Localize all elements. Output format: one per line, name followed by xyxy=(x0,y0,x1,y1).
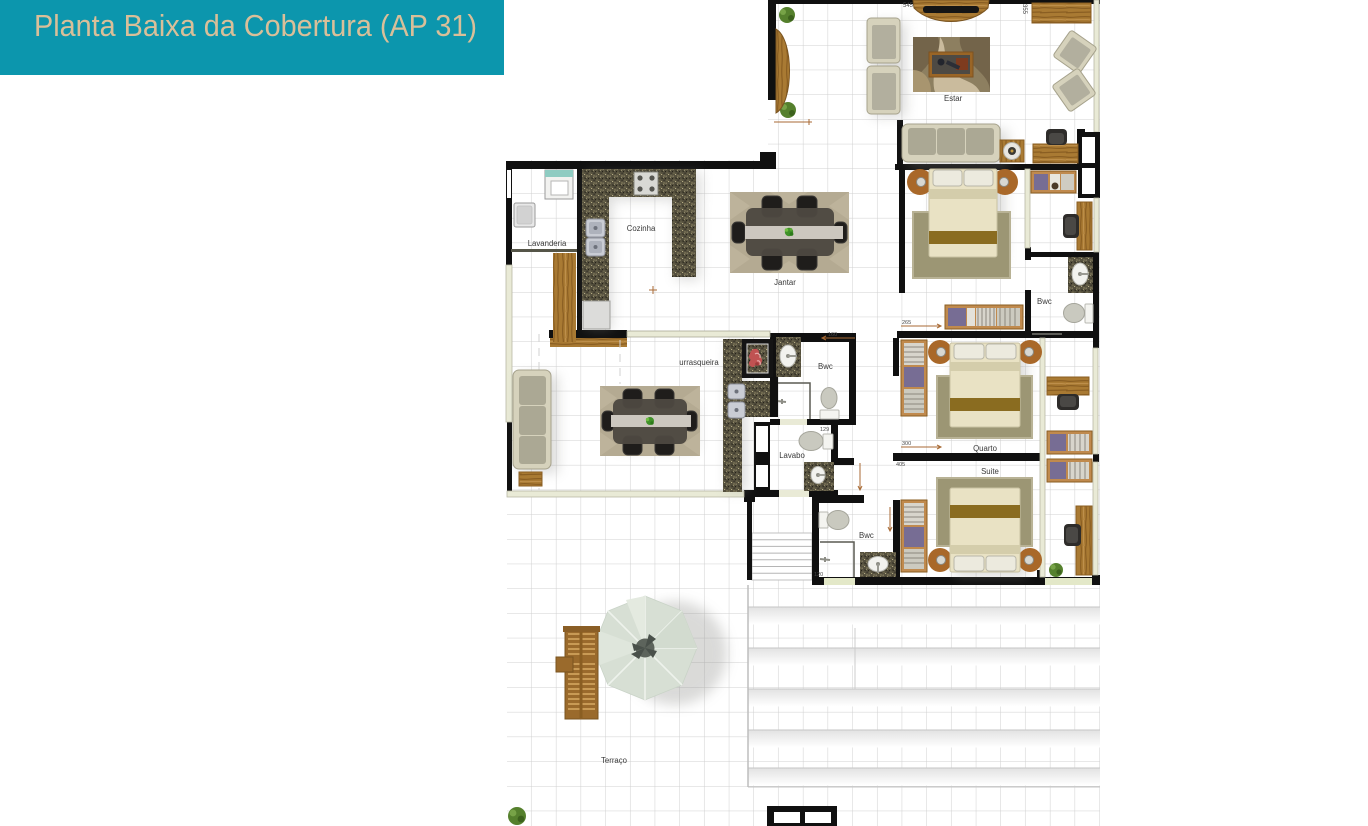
svg-text:Lavabo: Lavabo xyxy=(779,451,805,460)
svg-text:300: 300 xyxy=(902,441,911,447)
svg-text:Quarto: Quarto xyxy=(973,444,997,453)
svg-text:160: 160 xyxy=(828,332,837,338)
svg-text:Cozinha: Cozinha xyxy=(627,224,656,233)
svg-text:120: 120 xyxy=(814,572,823,578)
svg-text:Lavanderia: Lavanderia xyxy=(528,239,567,248)
svg-text:Planta Baixa da Cobertura (AP: Planta Baixa da Cobertura (AP 31) xyxy=(34,8,477,43)
svg-text:129: 129 xyxy=(820,427,829,433)
svg-text:Bwc: Bwc xyxy=(1037,297,1052,306)
svg-text:355: 355 xyxy=(1021,4,1027,15)
svg-text:urrasqueira: urrasqueira xyxy=(679,358,719,367)
svg-text:Bwc: Bwc xyxy=(859,531,874,540)
svg-text:265: 265 xyxy=(902,320,911,326)
svg-text:Bwc: Bwc xyxy=(818,362,833,371)
svg-text:545: 545 xyxy=(903,3,914,9)
svg-text:Estar: Estar xyxy=(944,94,963,103)
svg-text:405: 405 xyxy=(896,462,905,468)
svg-text:Suite: Suite xyxy=(981,467,999,476)
svg-text:Jantar: Jantar xyxy=(774,278,796,287)
svg-text:Terraço: Terraço xyxy=(601,756,628,765)
